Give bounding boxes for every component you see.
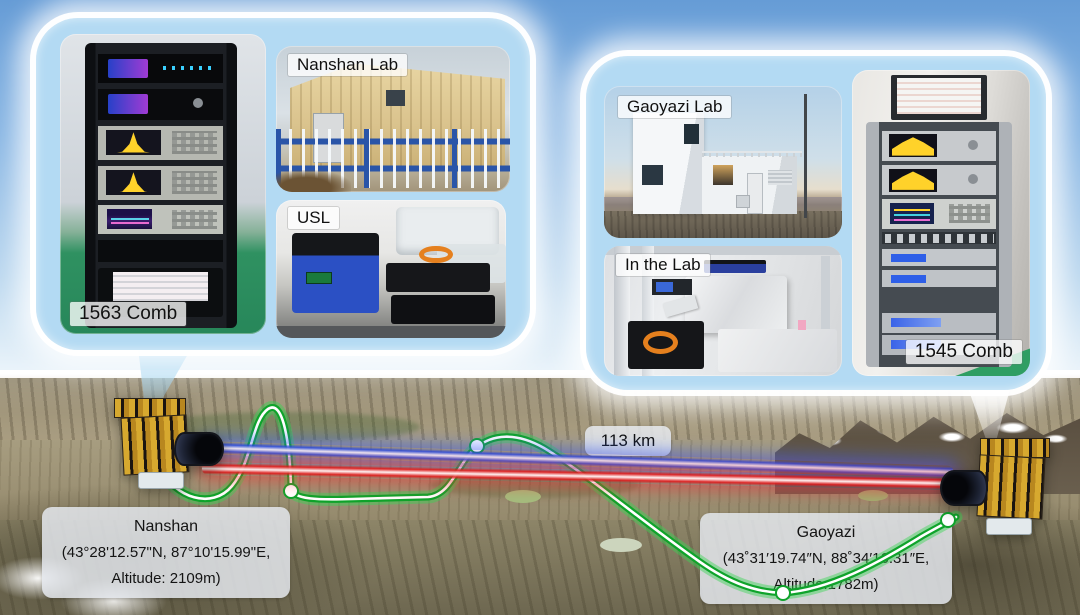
building-window	[386, 90, 405, 106]
comb-label-1563: 1563 Comb	[70, 302, 186, 326]
comb-label-1545: 1545 Comb	[906, 340, 1022, 364]
gaoyazi-coordinates: (43˚31′19.74″N, 88˚34′16.31″E,	[704, 546, 948, 572]
equipment-rack	[866, 122, 1012, 367]
rack-unit	[98, 54, 223, 83]
oscilloscope	[98, 205, 223, 234]
unit-display	[108, 94, 148, 115]
photo-usl-lab: USL	[276, 200, 506, 338]
rack-unit	[98, 89, 223, 120]
telescope-nanshan	[112, 398, 218, 492]
nanshan-site-label: Nanshan (43°28'12.57"N, 87°10'15.99"E, A…	[42, 507, 290, 598]
patch-panel	[882, 232, 996, 244]
callout-gaoyazi: Gaoyazi Lab In the Lab	[586, 56, 1046, 390]
photo-gaoyazi-rack: 1545 Comb	[852, 70, 1030, 376]
lake	[505, 490, 541, 503]
building-window	[642, 165, 663, 185]
callout-nanshan: 1563 Comb Nanshan Lab USL	[36, 18, 530, 350]
gaoyazi-site-name: Gaoyazi	[704, 520, 948, 546]
spectrum-trace	[892, 170, 934, 190]
unit-knob	[968, 174, 978, 184]
spectrum-screen	[106, 130, 161, 155]
gaoyazi-altitude: Altitude:1782m)	[704, 572, 948, 598]
figure-link-overview: Nanshan (43°28'12.57"N, 87°10'15.99"E, A…	[0, 0, 1080, 615]
spectrum-screen	[889, 134, 937, 157]
laptop-screen	[113, 272, 208, 301]
spectrum-peak	[117, 172, 150, 192]
cabinet-display	[306, 272, 332, 284]
spectrum-analyzer	[882, 165, 996, 196]
usl-label: USL	[288, 207, 339, 229]
building-window	[684, 124, 699, 144]
telescope-aperture	[940, 470, 988, 506]
instrument-box	[386, 263, 490, 292]
monitor	[891, 75, 987, 121]
spectrum-peak	[117, 132, 150, 152]
telescope-gaoyazi	[948, 438, 1052, 544]
rack-unit	[98, 240, 223, 263]
blue-display	[891, 275, 925, 283]
laser-cabinet	[292, 233, 379, 313]
comb-module	[882, 313, 996, 333]
building-window	[713, 165, 732, 185]
photo-inside-lab: In the Lab	[604, 246, 842, 376]
blue-display	[891, 254, 925, 262]
telescope-aperture	[174, 432, 224, 466]
counter-unit	[882, 249, 996, 266]
instrument-box	[391, 295, 495, 324]
roof-railing	[702, 151, 802, 157]
button-grid	[172, 210, 217, 229]
dirt-mound	[276, 170, 351, 192]
antenna-mast	[804, 94, 807, 219]
counter-unit	[882, 270, 996, 287]
spectrum-screen	[106, 170, 161, 195]
spectrum-analyzer	[882, 131, 996, 162]
instrument	[652, 279, 692, 296]
photo-gaoyazi-lab-building: Gaoyazi Lab	[604, 86, 842, 238]
lake	[600, 538, 642, 552]
oscilloscope	[882, 199, 996, 228]
nanshan-lab-label: Nanshan Lab	[288, 54, 407, 76]
telescope-mount	[138, 472, 184, 489]
unit-display	[108, 59, 148, 78]
lake	[858, 490, 888, 501]
button-grid	[949, 204, 990, 223]
fiber-spool	[643, 331, 678, 354]
insulated-box	[718, 329, 837, 372]
spectrum-analyzer	[98, 126, 223, 160]
blue-display	[891, 318, 941, 327]
roller-shutter	[768, 170, 792, 185]
optical-table	[276, 326, 506, 338]
photo-nanshan-lab-building: Nanshan Lab	[276, 46, 510, 192]
instrument-box	[628, 321, 704, 369]
distance-label: 113 km	[585, 426, 671, 456]
spectrum-analyzer	[98, 166, 223, 200]
spectrum-trace	[892, 136, 934, 156]
spectrum-screen	[889, 169, 937, 192]
nanshan-altitude: Altitude: 2109m)	[46, 566, 286, 592]
unit-knob	[193, 98, 203, 108]
button-grid	[172, 171, 217, 194]
nanshan-coordinates: (43°28'12.57"N, 87°10'15.99"E,	[46, 540, 286, 566]
ac-unit	[736, 195, 750, 207]
gaoyazi-site-label: Gaoyazi (43˚31′19.74″N, 88˚34′16.31″E, A…	[700, 513, 952, 604]
pink-tag	[798, 320, 806, 330]
unit-knob	[968, 140, 978, 150]
instrument-shelf	[704, 260, 766, 273]
gaoyazi-lab-label: Gaoyazi Lab	[618, 96, 731, 118]
indicator-lights	[163, 66, 216, 70]
oscilloscope-screen	[890, 203, 933, 224]
photo-nanshan-rack: 1563 Comb	[60, 34, 266, 334]
telescope-mount	[986, 518, 1032, 535]
nanshan-site-name: Nanshan	[46, 514, 286, 540]
button-grid	[172, 131, 217, 154]
in-the-lab-label: In the Lab	[616, 254, 710, 276]
equipment-rack	[85, 43, 237, 328]
oscilloscope-screen	[107, 209, 152, 229]
